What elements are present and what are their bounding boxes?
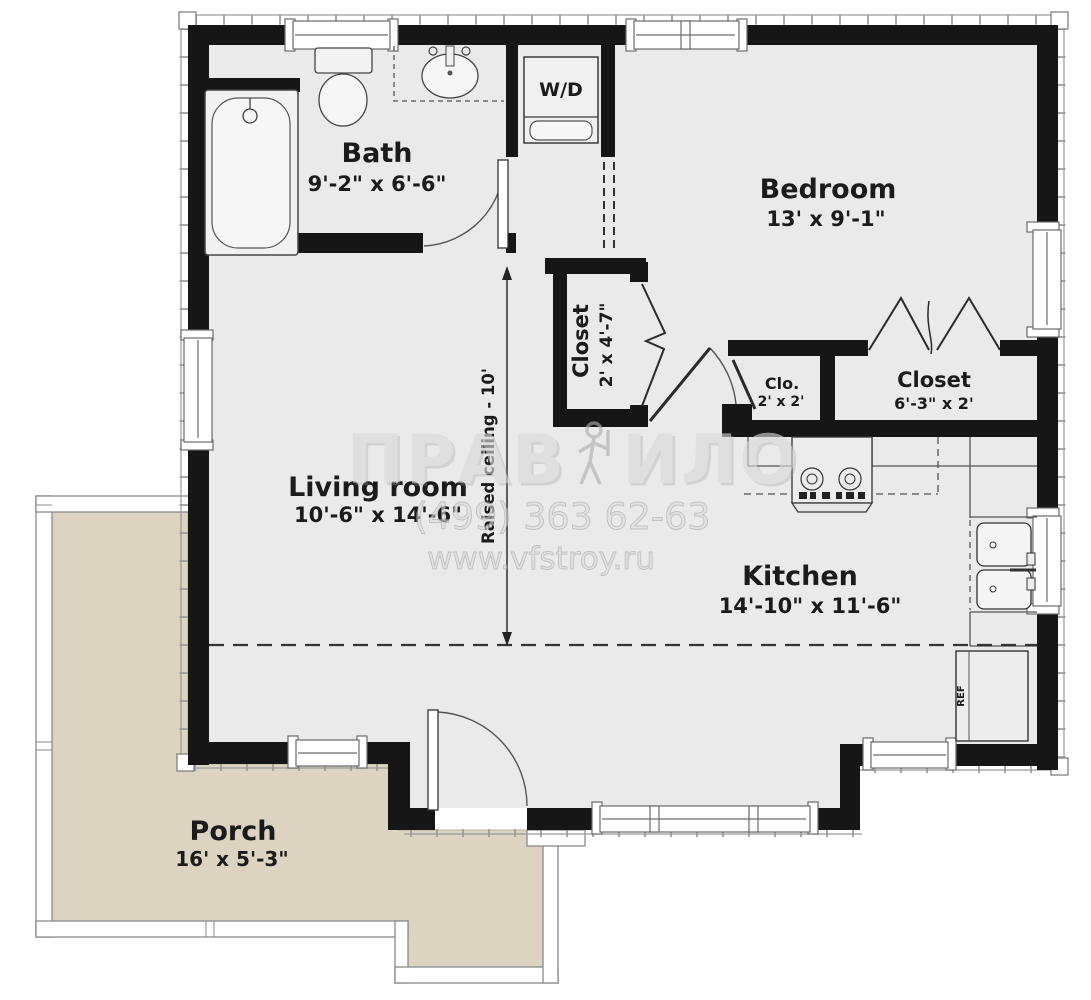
porch-dims: 16' x 5'-3" bbox=[175, 847, 288, 871]
hall-closet-label: Closet bbox=[569, 304, 593, 378]
window-kitchen-bottom bbox=[863, 738, 956, 770]
toilet bbox=[315, 48, 372, 126]
porch-label: Porch bbox=[190, 816, 277, 847]
window-living-bottom bbox=[288, 736, 367, 768]
window-bedroom-top bbox=[626, 19, 747, 51]
porch-rail-top bbox=[36, 496, 190, 512]
porch-rail-step-right bbox=[543, 828, 558, 983]
bedroom-dims: 13' x 9'-1" bbox=[766, 207, 885, 231]
window-band-bottom bbox=[592, 802, 818, 834]
refrigerator-label: REF bbox=[956, 685, 967, 706]
small-closet-label: Clo. bbox=[765, 374, 799, 393]
watermark-brand-right: ИЛО bbox=[622, 421, 799, 500]
stove bbox=[792, 437, 872, 512]
washer-dryer-label: W/D bbox=[539, 79, 583, 101]
floor-plan-page: REF Raised ceiling - 10' Bath 9'-2" x 6'… bbox=[0, 0, 1091, 1000]
stove-front-lip bbox=[792, 503, 872, 512]
watermark-brand-left: ПРАВ bbox=[347, 421, 566, 500]
watermark-phone: (499) 363 62-63 bbox=[413, 495, 710, 538]
bathtub bbox=[205, 90, 298, 255]
porch-rail-step-bottom bbox=[395, 967, 558, 983]
bedroom-closet-dims: 6'-3" x 2' bbox=[894, 394, 974, 413]
window-living-left bbox=[181, 330, 213, 450]
sink-drain bbox=[448, 71, 453, 76]
window-bath-top bbox=[285, 19, 398, 51]
bedroom-label: Bedroom bbox=[760, 174, 897, 205]
bath-dims: 9'-2" x 6'-6" bbox=[308, 172, 447, 196]
bedroom-closet-label: Closet bbox=[897, 368, 971, 392]
porch-entry-post bbox=[527, 830, 585, 846]
small-closet-dims: 2' x 2' bbox=[758, 394, 805, 410]
porch-rail-bottom bbox=[36, 921, 408, 937]
porch-rail-left bbox=[36, 496, 52, 937]
hall-closet-dims: 2' x 4'-7" bbox=[597, 303, 617, 388]
kitchen-label: Kitchen bbox=[742, 561, 858, 592]
floor-plan-drawing: REF Raised ceiling - 10' Bath 9'-2" x 6'… bbox=[0, 0, 1091, 1000]
faucet-spout bbox=[446, 46, 454, 66]
kitchen-dims: 14'-10" x 11'-6" bbox=[719, 594, 902, 618]
refrigerator: REF bbox=[956, 651, 1028, 741]
watermark-website: www.vfstroy.ru bbox=[427, 541, 655, 577]
bath-label: Bath bbox=[342, 138, 413, 169]
